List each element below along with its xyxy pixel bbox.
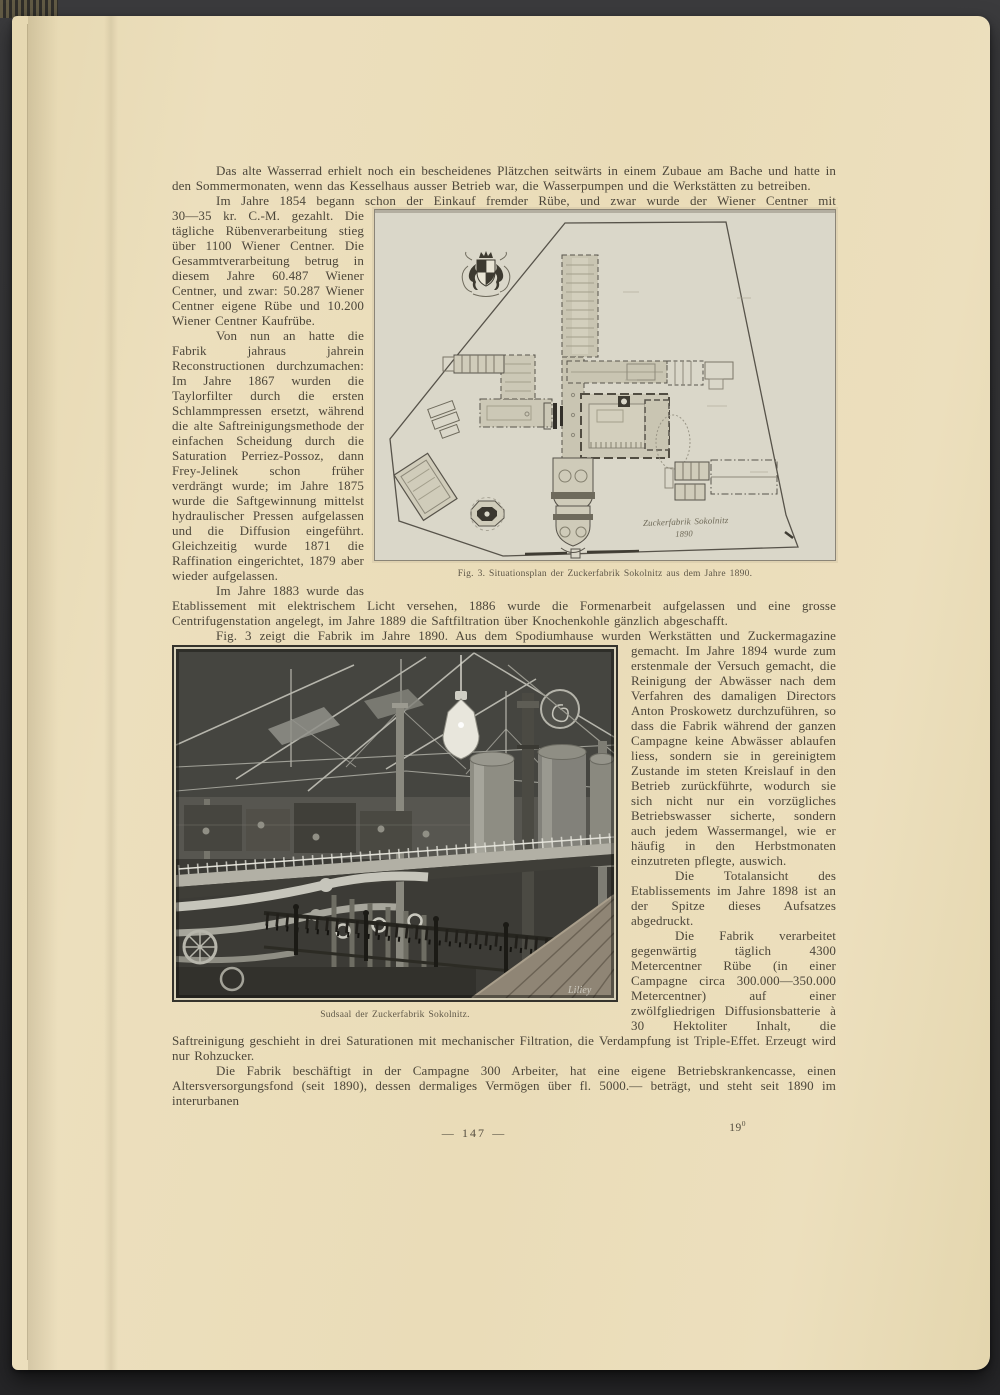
text-block: Das alte Wasserrad erhielt noch ein besc…: [172, 16, 836, 1146]
paragraph-8-text: Die Fabrik beschäftigt in der Campagne 3…: [172, 1063, 836, 1108]
paragraph-4-text: Im Jahre 1883 wurde das Etablissement mi…: [172, 583, 836, 628]
paragraph-2-rest-text: 30—35 kr. C.-M. gezahlt. Die tägliche Rü…: [172, 208, 364, 328]
paragraph-5-rest-text: gemacht. Im Jahre 1894 wurde zum erstenm…: [631, 643, 836, 868]
paragraph-1-text: Das alte Wasserrad erhielt noch ein besc…: [172, 163, 836, 193]
factory-photo-figure: Liliey Sudsaal der Zuckerfabrik Sokolnit…: [172, 645, 618, 1021]
page-footer: — 147 — 190: [172, 1126, 836, 1146]
section-photo: Fig. 3 zeigt die Fabrik im Jahre 1890. A…: [172, 628, 836, 1108]
book-page: Das alte Wasserrad erhielt noch ein besc…: [12, 16, 990, 1370]
signature-mark: 190: [729, 1116, 746, 1136]
paragraph-4: Im Jahre 1883 wurde das Etablissement mi…: [172, 583, 836, 628]
site-plan-caption: Fig. 3. Situationsplan der Zuckerfabrik …: [374, 568, 836, 580]
factory-photo: Liliey: [176, 649, 614, 998]
paragraph-5-intro: Fig. 3 zeigt die Fabrik im Jahre 1890. A…: [172, 628, 836, 643]
site-plan-drawing: Zuckerfabrik Sokolnitz 1890: [375, 210, 835, 560]
section-plan: Im Jahre 1854 begann schon der Einkauf f…: [172, 193, 836, 628]
photo-caption: Sudsaal der Zuckerfabrik Sokolnitz.: [172, 1009, 618, 1021]
paragraph-8: Die Fabrik beschäftigt in der Campagne 3…: [172, 1063, 836, 1108]
paragraph-1: Das alte Wasserrad erhielt noch ein besc…: [172, 163, 836, 193]
gutter-crease: [104, 16, 118, 1370]
site-plan-figure: Zuckerfabrik Sokolnitz 1890 Fig. 3. Situ…: [374, 209, 836, 580]
paragraph-3-text: Von nun an hatte die Fabrik jahraus jahr…: [172, 328, 364, 583]
svg-text:1890: 1890: [675, 528, 693, 539]
engraver-signature: Liliey: [567, 985, 592, 996]
signature-mark-sup: 0: [742, 1119, 746, 1128]
paragraph-2-intro: Im Jahre 1854 begann schon der Einkauf f…: [172, 193, 836, 208]
page-number: — 147 —: [442, 1126, 506, 1141]
factory-photo-frame: Liliey: [172, 645, 618, 1002]
site-plan-frame: Zuckerfabrik Sokolnitz 1890: [374, 209, 836, 561]
paragraph-5-intro-text: Fig. 3 zeigt die Fabrik im Jahre 1890. A…: [216, 628, 836, 643]
paragraph-6-text: Die Totalansicht des Etablissements im J…: [631, 868, 836, 928]
book-scan: { "page": { "footer": "— 147 —", "signat…: [0, 0, 1000, 1395]
signature-mark-number: 19: [729, 1122, 742, 1134]
paragraph-2-intro-text: Im Jahre 1854 begann schon der Einkauf f…: [216, 193, 836, 208]
